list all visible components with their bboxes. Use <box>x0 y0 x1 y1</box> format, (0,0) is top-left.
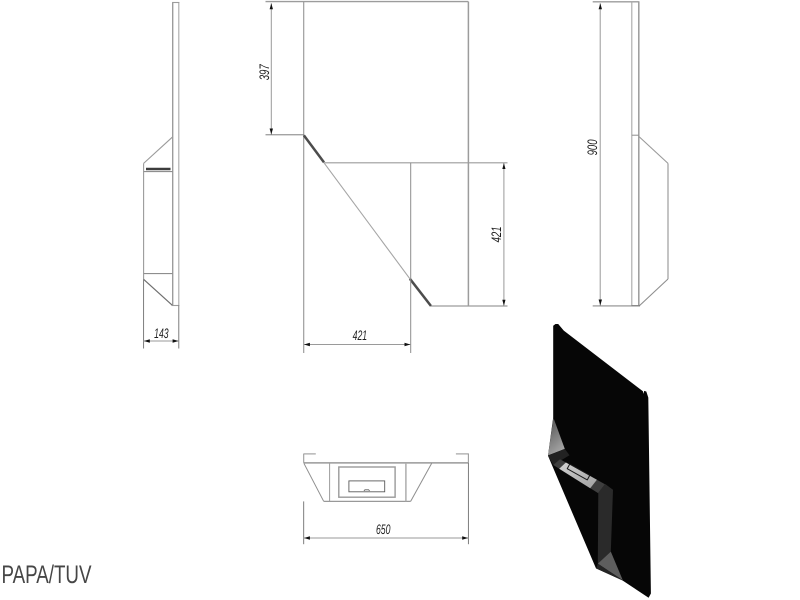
svg-text:397: 397 <box>257 63 272 80</box>
svg-text:421: 421 <box>489 226 504 242</box>
svg-text:900: 900 <box>585 139 600 155</box>
svg-text:143: 143 <box>154 326 169 341</box>
svg-text:421: 421 <box>353 328 368 343</box>
svg-text:PAPA/TUV: PAPA/TUV <box>2 561 92 589</box>
svg-text:650: 650 <box>376 522 391 537</box>
